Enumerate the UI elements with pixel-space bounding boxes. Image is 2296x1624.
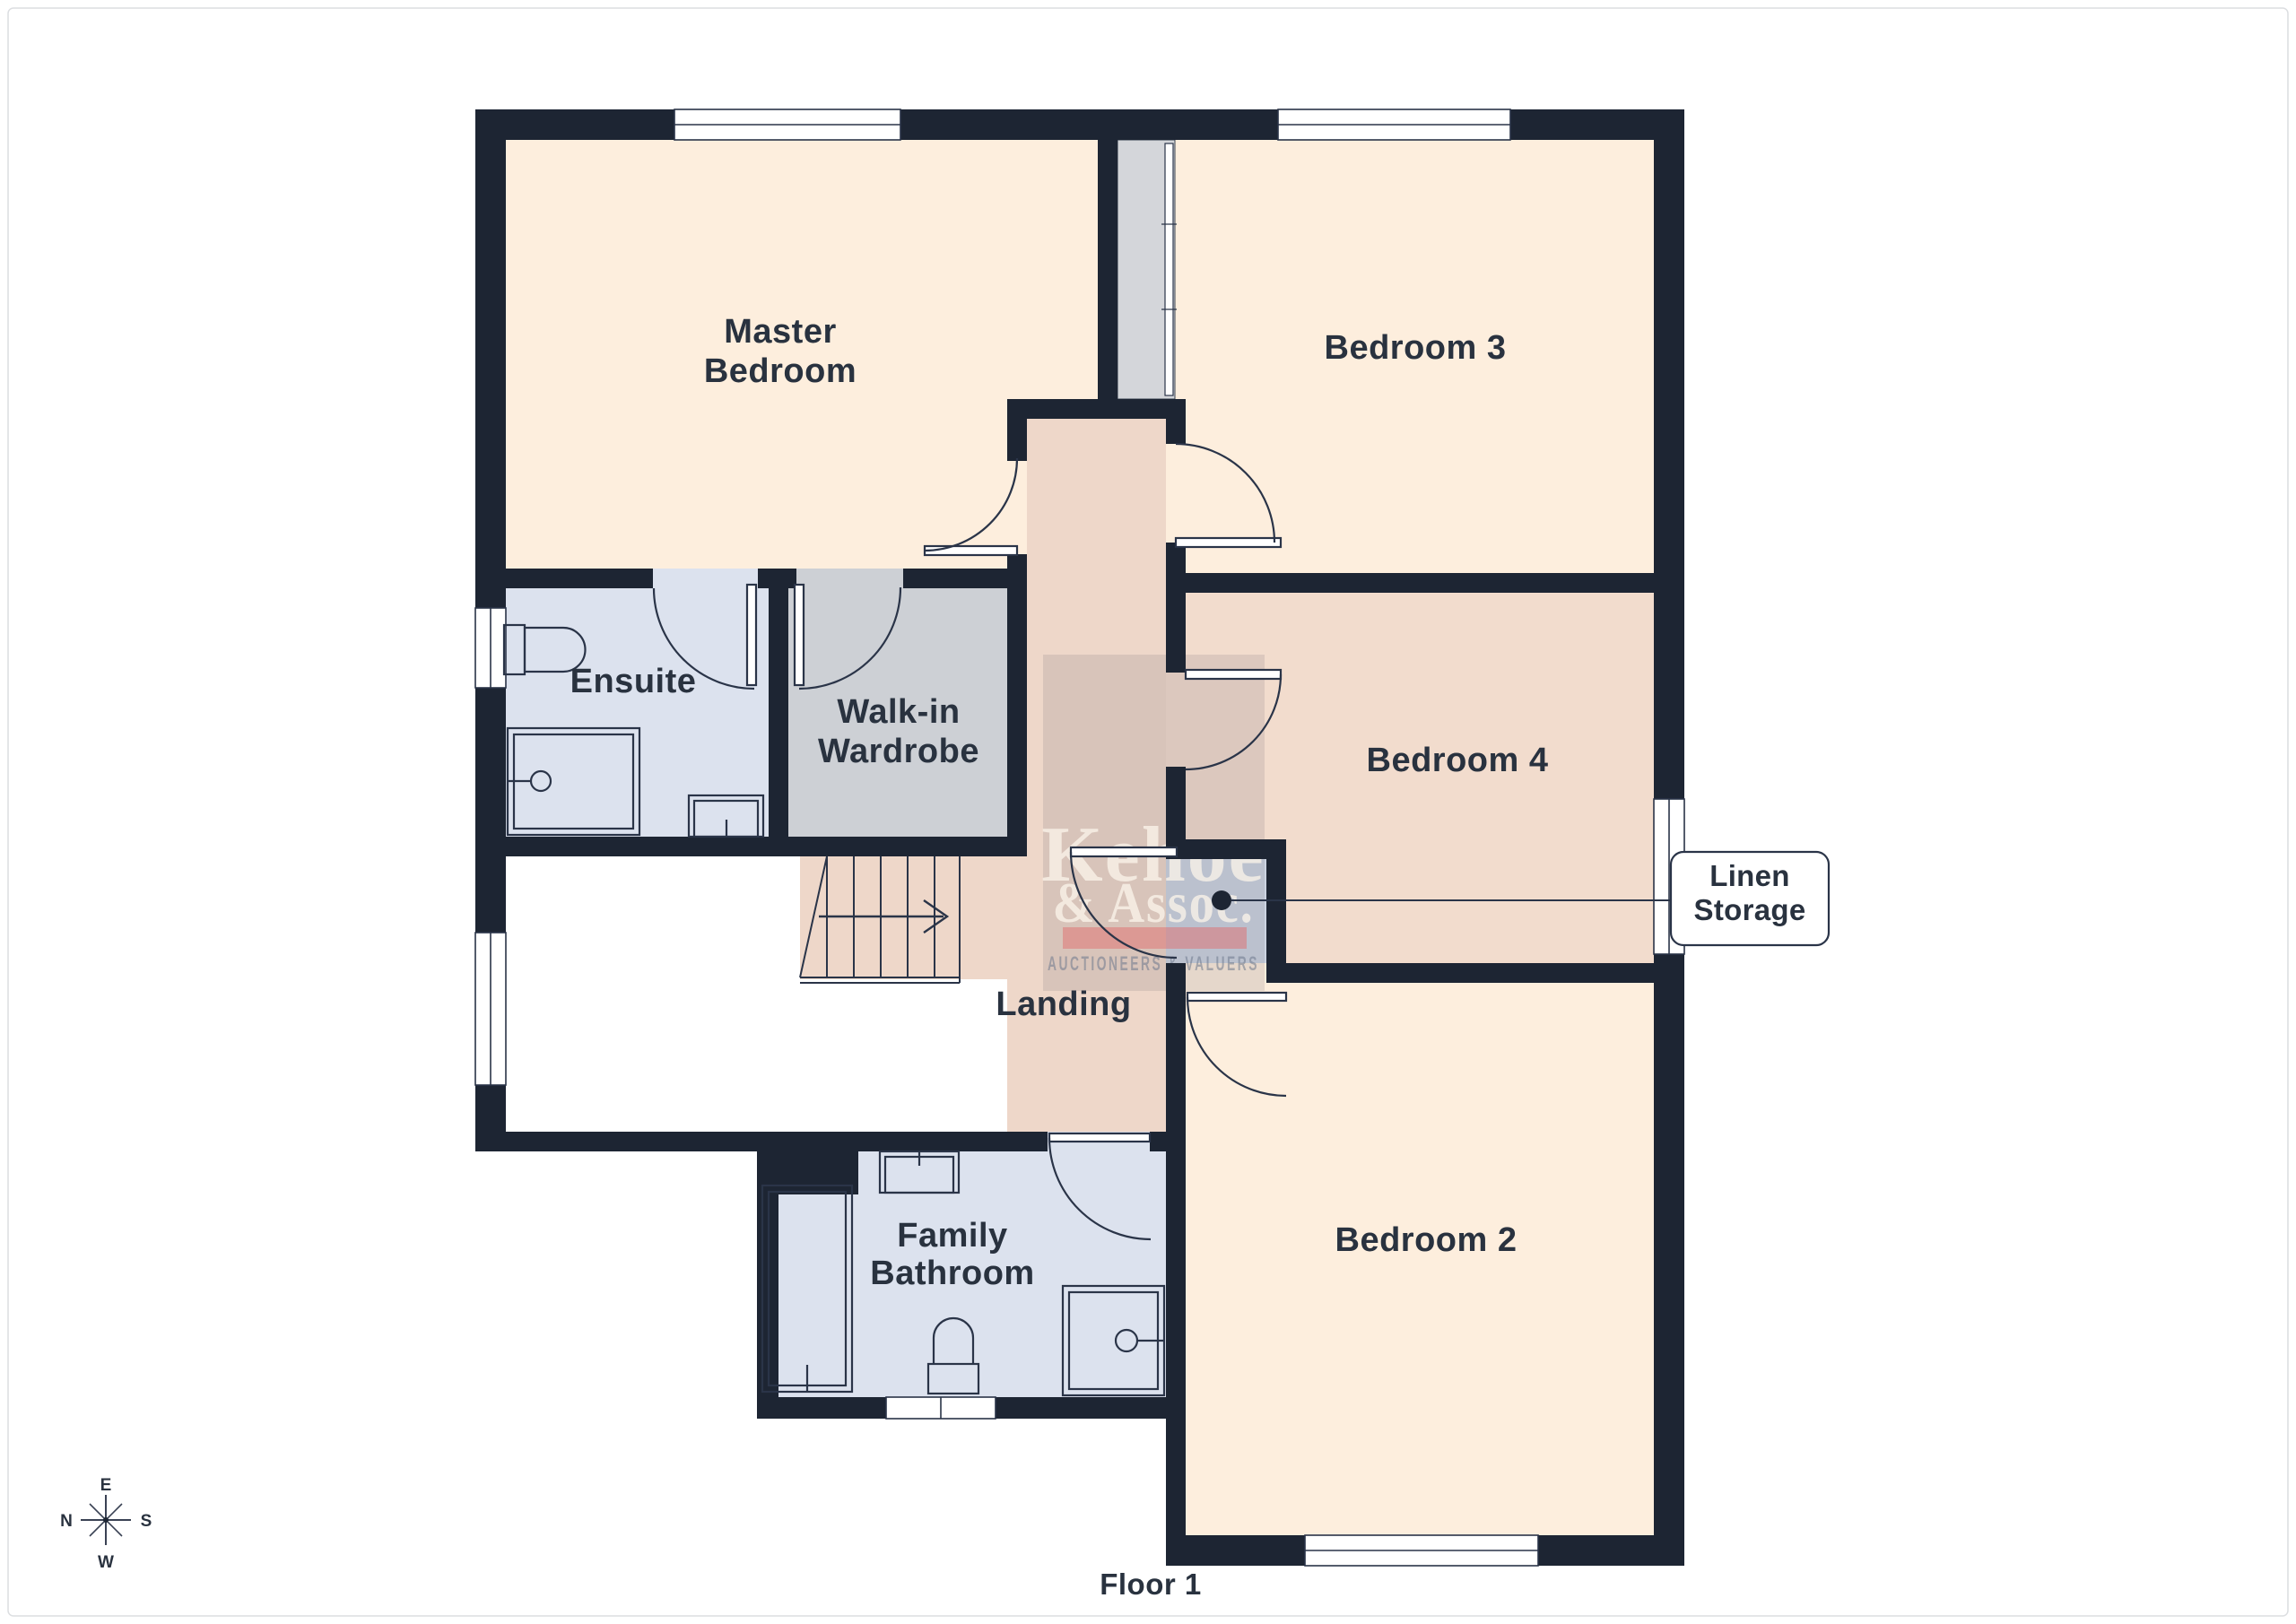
bedroom3-label: Bedroom 3 xyxy=(1325,329,1507,367)
wall-segment xyxy=(903,569,1027,588)
wall-segment xyxy=(1166,419,1186,444)
bedroom2-label: Bedroom 2 xyxy=(1335,1221,1518,1259)
wall-segment xyxy=(1166,573,1684,593)
wall-segment xyxy=(1007,419,1027,461)
compass-top-letter: E xyxy=(100,1476,112,1495)
window-ensuite-left xyxy=(475,608,506,688)
window-stairwell-left xyxy=(475,933,506,1085)
wall-segment xyxy=(778,1151,858,1194)
compass-right-letter: S xyxy=(141,1512,152,1531)
wall-segment xyxy=(1098,140,1118,399)
compass-left-letter: N xyxy=(60,1512,73,1531)
bedroom4-label: Bedroom 4 xyxy=(1367,742,1549,779)
master-bedroom-label-line2: Bedroom xyxy=(704,352,857,390)
watermark: Kehoe & Assoc. AUCTIONEERS & VALUERS xyxy=(1041,655,1265,991)
floor-title: Floor 1 xyxy=(1100,1568,1202,1601)
wardrobe-label-line1: Walk-in xyxy=(837,693,960,731)
landing-stairs-floor xyxy=(800,856,1007,979)
wall-segment xyxy=(1007,588,1027,856)
ensuite-label: Ensuite xyxy=(570,663,697,700)
compass-center-dot xyxy=(103,1517,109,1523)
callout-anchor-dot xyxy=(1212,890,1231,910)
master-bedroom-label-line1: Master xyxy=(724,313,837,351)
landing-label: Landing xyxy=(996,986,1131,1023)
floor-plan-page: Kehoe & Assoc. AUCTIONEERS & VALUERS xyxy=(0,0,2296,1624)
wall-segment xyxy=(1007,554,1027,569)
window-bedroom3-top xyxy=(1278,109,1510,140)
bathroom-label-line1: Family xyxy=(897,1217,1007,1255)
callout-text-line1: Linen xyxy=(1709,859,1790,892)
callout-text-line2: Storage xyxy=(1694,893,1806,926)
ensuite-floor xyxy=(506,569,788,856)
window-master-top xyxy=(674,109,900,140)
window-bedroom2-bottom xyxy=(1305,1535,1538,1566)
wall-segment xyxy=(1166,767,1186,839)
watermark-red-bar xyxy=(1063,927,1247,949)
wall-segment xyxy=(769,569,788,856)
wardrobe-label-line2: Wardrobe xyxy=(818,733,979,770)
wall-segment xyxy=(475,837,1027,856)
wall-segment xyxy=(1286,963,1684,983)
wall-segment xyxy=(1166,983,1186,1566)
wall-segment xyxy=(475,569,653,588)
wall-segment xyxy=(1166,963,1186,983)
compass-bottom-letter: W xyxy=(98,1553,114,1572)
window-bathroom-bottom xyxy=(886,1397,996,1419)
floor-plan-canvas: Kehoe & Assoc. AUCTIONEERS & VALUERS xyxy=(0,0,2296,1624)
compass-rose-icon: E S W N xyxy=(60,1476,152,1572)
wall-segment xyxy=(1007,399,1186,419)
wall-segment xyxy=(1166,543,1186,673)
bathroom-label-line2: Bathroom xyxy=(870,1255,1034,1292)
wall-segment xyxy=(1266,839,1286,983)
